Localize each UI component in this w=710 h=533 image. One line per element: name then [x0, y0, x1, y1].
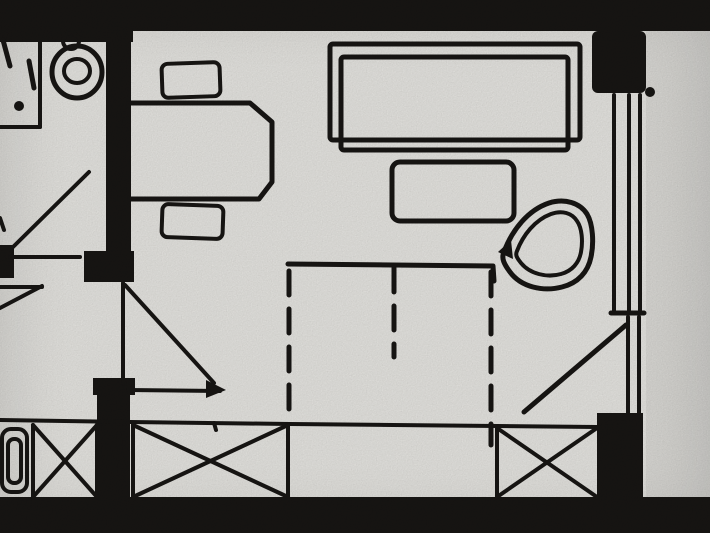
bath-door-jamb-right [84, 251, 134, 282]
side-table-outline [392, 162, 514, 221]
floor-plan-scan [0, 0, 710, 533]
toilet-fixture-mark-2 [29, 61, 34, 88]
balcony-door-swing [524, 325, 626, 412]
window-corner-dot [645, 87, 655, 97]
desk-chair-bottom [161, 204, 223, 239]
armchair-inner-shell [516, 212, 582, 275]
bath-door-leaf [12, 172, 89, 248]
balcony-rail-line [0, 420, 597, 427]
room-door-arrowhead [206, 380, 226, 398]
window-pier-top [592, 31, 646, 93]
bath-wall-edge-mark [0, 218, 4, 230]
bottom-wall [0, 497, 710, 533]
desk-chair-top [161, 62, 220, 98]
adjacent-bay-shading [646, 31, 710, 497]
bath-room-divider-wall [106, 31, 131, 254]
room-door-swing [125, 285, 214, 383]
toilet-fixture-dot [14, 101, 24, 111]
sofa-inner-outline [341, 57, 568, 150]
hall-room-wall [97, 378, 130, 500]
desk-outline [131, 103, 272, 199]
floor-plan-drawing [0, 0, 710, 533]
washbasin-outer-bowl [52, 46, 102, 98]
entry-door-swing [0, 286, 42, 308]
washbasin-inner-bowl [64, 59, 90, 83]
bed-head-edge [288, 264, 494, 281]
planter-inner-outline [8, 439, 21, 483]
rail-pen-mark [214, 423, 216, 430]
toilet-fixture-mark-1 [3, 40, 10, 66]
balcony-pier-right [597, 413, 643, 499]
